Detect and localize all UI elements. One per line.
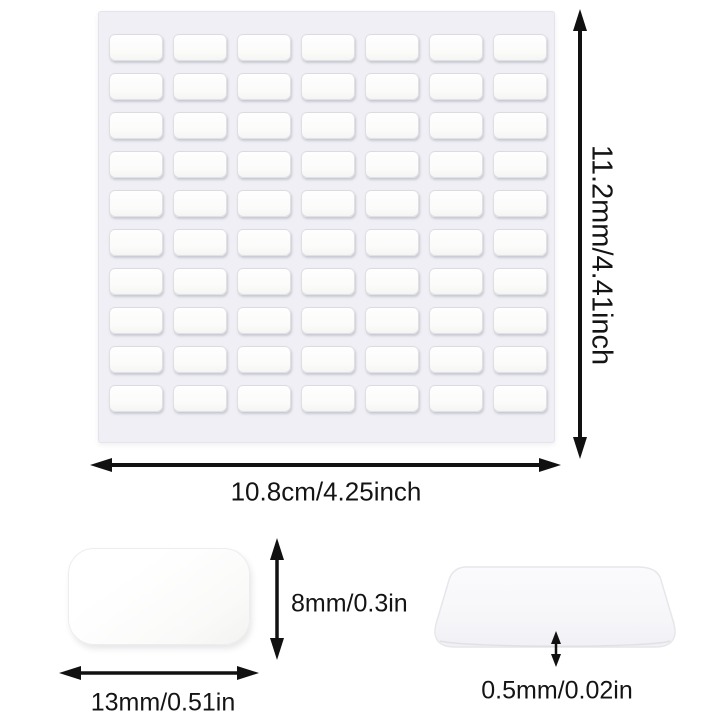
sheet-pad bbox=[173, 34, 227, 61]
sheet-pad bbox=[109, 346, 163, 373]
single-pad-height-label: 8mm/0.3in bbox=[291, 590, 408, 619]
sheet-pad bbox=[365, 268, 419, 295]
sheet-pad bbox=[365, 190, 419, 217]
sheet-pad bbox=[301, 385, 355, 412]
sheet-pad bbox=[301, 112, 355, 139]
sheet-pad bbox=[237, 34, 291, 61]
sheet-pad bbox=[109, 34, 163, 61]
thin-pad-shape bbox=[435, 567, 675, 647]
thin-pad-thickness-arrow bbox=[551, 631, 561, 667]
sheet-pad bbox=[493, 268, 547, 295]
sheet-pad bbox=[429, 229, 483, 256]
sheet-pad bbox=[301, 151, 355, 178]
sheet-pad bbox=[301, 34, 355, 61]
product-diagram: 11.2mm/4.41inch 10.8cm/4.25inch 8mm/0.3i… bbox=[0, 0, 720, 720]
sheet-pad bbox=[237, 73, 291, 100]
sheet-pad bbox=[237, 151, 291, 178]
sheet-pad bbox=[429, 307, 483, 334]
sheet-pad bbox=[365, 34, 419, 61]
sheet-pad bbox=[429, 151, 483, 178]
sheet-pad bbox=[301, 268, 355, 295]
sheet-pad bbox=[109, 385, 163, 412]
pad-grid bbox=[99, 12, 554, 412]
sheet-pad bbox=[493, 151, 547, 178]
sheet-pad bbox=[301, 190, 355, 217]
sheet-pad bbox=[173, 385, 227, 412]
single-pad-height-arrow bbox=[270, 538, 284, 660]
sheet-pad bbox=[493, 73, 547, 100]
sheet-pad bbox=[237, 190, 291, 217]
sheet-pad bbox=[301, 229, 355, 256]
sheet-pad bbox=[365, 307, 419, 334]
sheet-pad bbox=[173, 307, 227, 334]
sheet-pad bbox=[109, 112, 163, 139]
sheet-pad bbox=[365, 73, 419, 100]
single-pad-width-label: 13mm/0.51in bbox=[91, 689, 236, 718]
sheet-pad bbox=[109, 151, 163, 178]
sheet-pad bbox=[365, 229, 419, 256]
sheet-height-label: 11.2mm/4.41inch bbox=[585, 145, 618, 365]
sheet-pad bbox=[365, 385, 419, 412]
sheet-pad bbox=[237, 385, 291, 412]
sheet-pad bbox=[173, 346, 227, 373]
sheet-pad bbox=[173, 73, 227, 100]
sheet-pad bbox=[493, 229, 547, 256]
thin-pad-bottom-edge bbox=[440, 641, 670, 646]
sheet-pad bbox=[493, 385, 547, 412]
sheet-pad bbox=[493, 34, 547, 61]
sheet-pad bbox=[173, 151, 227, 178]
sheet-pad bbox=[301, 346, 355, 373]
sheet-pad bbox=[493, 346, 547, 373]
sheet-pad bbox=[109, 190, 163, 217]
sheet-pad bbox=[365, 151, 419, 178]
sheet-pad bbox=[429, 190, 483, 217]
sheet-pad bbox=[301, 73, 355, 100]
sheet-pad bbox=[173, 268, 227, 295]
sheet-pad bbox=[237, 346, 291, 373]
sheet-pad bbox=[173, 190, 227, 217]
sheet-width-label: 10.8cm/4.25inch bbox=[231, 477, 422, 508]
sheet-pad bbox=[429, 112, 483, 139]
sheet-pad bbox=[365, 112, 419, 139]
thin-pad-thickness-label: 0.5mm/0.02in bbox=[481, 677, 632, 706]
sheet-pad bbox=[301, 307, 355, 334]
sheet-pad bbox=[237, 307, 291, 334]
sheet-pad bbox=[109, 268, 163, 295]
sheet-pad bbox=[493, 190, 547, 217]
sheet-pad bbox=[493, 307, 547, 334]
sheet-pad bbox=[109, 73, 163, 100]
sheet-pad bbox=[493, 112, 547, 139]
sheet-width-arrow bbox=[90, 458, 561, 472]
sheet-pad bbox=[429, 346, 483, 373]
sheet-pad bbox=[429, 385, 483, 412]
sheet-pad bbox=[237, 268, 291, 295]
sheet-pad bbox=[365, 346, 419, 373]
sheet-pad bbox=[173, 112, 227, 139]
single-pad bbox=[68, 548, 250, 645]
single-pad-width-arrow bbox=[59, 666, 259, 680]
sheet-pad bbox=[429, 268, 483, 295]
sheet-pad bbox=[109, 307, 163, 334]
sheet-pad bbox=[173, 229, 227, 256]
sheet-pad bbox=[429, 73, 483, 100]
sheet-pad bbox=[237, 229, 291, 256]
sheet-pad bbox=[109, 229, 163, 256]
sheet-pad bbox=[237, 112, 291, 139]
tape-sheet bbox=[98, 11, 555, 443]
sheet-pad bbox=[429, 34, 483, 61]
